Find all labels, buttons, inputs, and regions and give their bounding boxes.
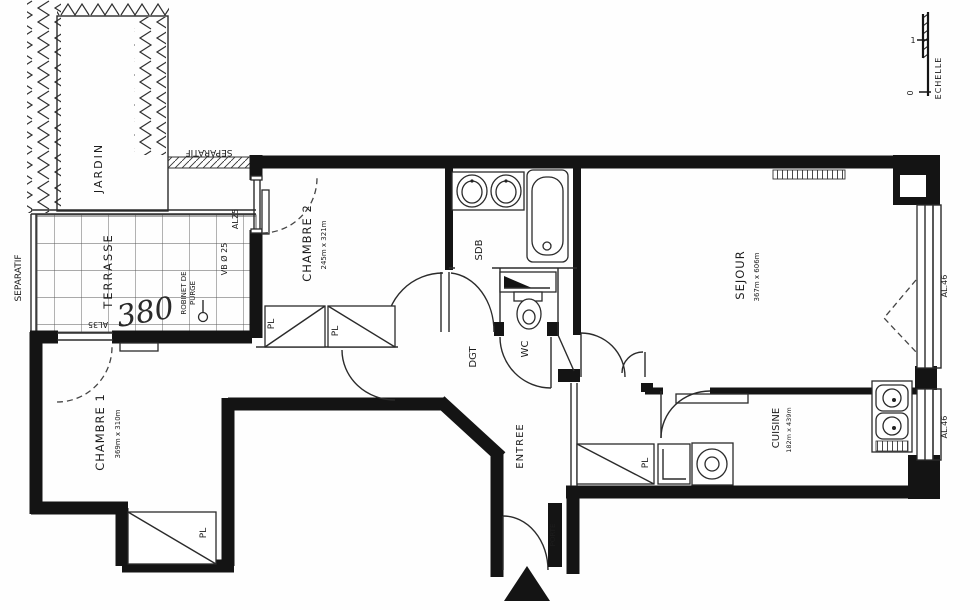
closet-label-pl-3: PL (199, 528, 209, 538)
robinet-de-purge-symbol (199, 313, 208, 322)
window-swing-sejour (884, 280, 916, 352)
room-label-chambre1: CHAMBRE 1 (93, 393, 107, 471)
window-chambre2-west (251, 176, 269, 234)
scale-bar (917, 12, 931, 96)
room-label-wc: WC (520, 341, 531, 358)
separatif-left-label: SEPARATIF (14, 254, 24, 301)
closet-label-pl-1: PL (267, 319, 277, 329)
room-label-chambre2: CHAMBRE 2 (300, 204, 314, 282)
floor-plan-sheet: JARDIN SEPARATIF SEPARATIF TERRASSE 380 … (0, 0, 980, 610)
al25-label: AL25 (231, 209, 240, 229)
radiator (676, 394, 748, 403)
robinet-label-line1: ROBINET DE (180, 271, 188, 314)
al46-sejour-label: AL.46 (940, 275, 949, 298)
room-label-sejour: SEJOUR (733, 250, 747, 299)
window-sejour-east (917, 205, 941, 368)
radiator (262, 190, 269, 234)
scale-tick-0-label: 0 (906, 90, 915, 95)
wc-fixtures (500, 272, 556, 329)
vent-strip (773, 170, 845, 179)
separatif-strip-top (168, 157, 250, 168)
terrasse-label: TERRASSE (101, 233, 115, 310)
room-dims-chambre2: 245m x 321m (320, 220, 328, 269)
room-dims-cuisine: 182m x 439m (785, 407, 793, 452)
entrance-door-label: PORTE (549, 524, 557, 547)
door-sejour-double (581, 333, 645, 377)
radiator (120, 343, 158, 351)
scale-tick-1-label: 1 (910, 36, 915, 45)
echelle-label: ECHELLE (934, 57, 943, 100)
al35-label: AL35 (88, 320, 108, 329)
door-chambre1 (342, 350, 395, 400)
room-label-entree: ENTREE (515, 423, 526, 469)
room-dims-chambre1: 369m x 310m (114, 409, 122, 458)
door-chambre2-sdb (386, 272, 494, 332)
room-label-sdb: SDB (474, 239, 485, 260)
vb25-label: VB Ø 25 (219, 243, 229, 276)
room-dims-sejour: 367m x 606m (753, 252, 761, 301)
room-label-cuisine: CUISINE (771, 408, 782, 448)
closet-label-pl-4: PL (641, 458, 651, 468)
entrance-arrow (504, 566, 550, 601)
window-cuisine-east (917, 389, 941, 460)
al46-cuisine-label: AL.46 (940, 416, 949, 439)
room-label-dgt: DGT (468, 346, 479, 368)
sink-drainer (876, 441, 908, 451)
jardin-label: JARDIN (92, 143, 105, 194)
floor-plan-drawing: JARDIN SEPARATIF SEPARATIF TERRASSE 380 … (0, 0, 980, 610)
separatif-top-label: SEPARATIF (185, 147, 232, 157)
closet-label-pl-2: PL (331, 326, 341, 336)
robinet-label-line2: PURGE (189, 281, 197, 305)
bathroom-fixtures (452, 170, 568, 262)
